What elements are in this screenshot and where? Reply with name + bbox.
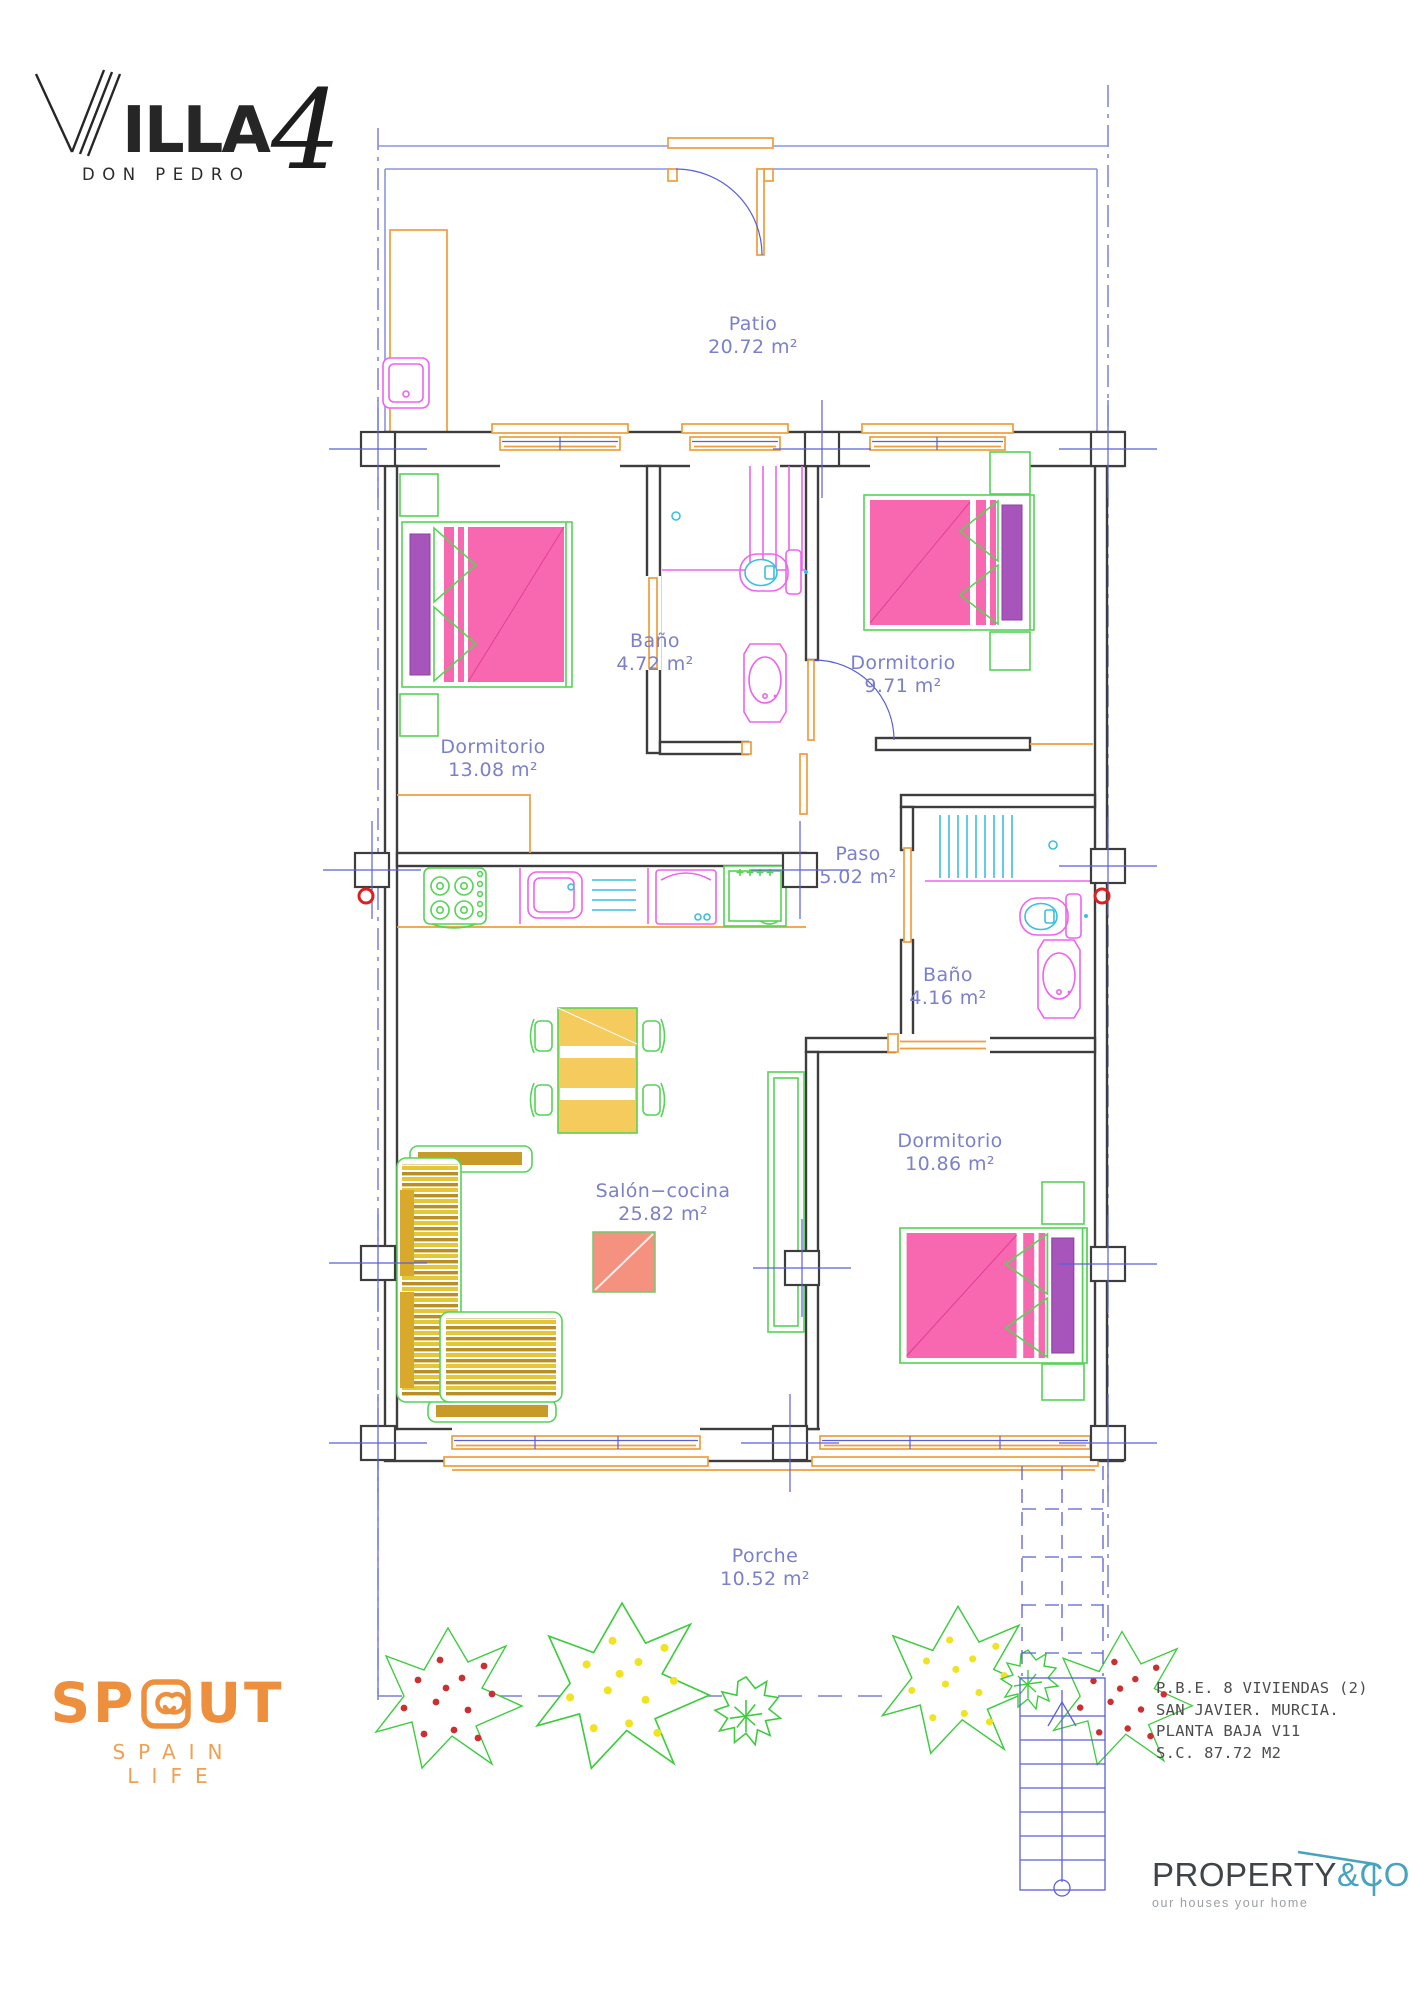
window-top-dormitorio-1	[492, 424, 628, 468]
room-name: Dormitorio	[440, 736, 545, 759]
room-name: Paso	[835, 843, 880, 866]
project-info-line: PLANTA BAJA V11	[1156, 1721, 1368, 1743]
patio-sink-icon	[383, 358, 429, 408]
room-name: Baño	[630, 630, 680, 653]
room-area: 9.71 m²	[864, 675, 941, 698]
room-name: Porche	[732, 1545, 798, 1568]
room-area: 13.08 m²	[448, 759, 538, 782]
door-dormitorio-3	[888, 1034, 990, 1054]
room-label-bano-2: Baño 4.16 m²	[868, 964, 1028, 1009]
room-area: 20.72 m²	[708, 336, 798, 359]
spout-tagline: SPAIN LIFE	[45, 1740, 290, 1788]
spout-logo-left: SP	[50, 1676, 136, 1731]
spout-o-icon	[140, 1678, 192, 1730]
bed-dormitorio-3	[900, 1228, 1087, 1363]
spout-logo-row: SP UT	[45, 1676, 290, 1731]
wardrobe	[768, 1072, 804, 1332]
roof-icon	[1292, 1834, 1388, 1898]
room-area: 25.82 m²	[618, 1203, 708, 1226]
dishwasher-icon	[656, 870, 716, 924]
project-info: P.B.E. 8 VIVIENDAS (2) SAN JAVIER. MURCI…	[1156, 1678, 1368, 1764]
villa-logo-graphic: ILLA 4 DON PEDRO	[28, 52, 358, 197]
stove-icon	[424, 868, 486, 928]
window-bottom-dormitorio-3	[812, 1427, 1098, 1466]
room-area: 10.86 m²	[905, 1153, 995, 1176]
property-co-logo: PROPERTY&CO our houses your home	[1152, 1858, 1412, 1910]
sink-icon-bano-1	[744, 644, 786, 722]
spout-logo: SPOUT SP UT SPAIN LIFE	[45, 1676, 290, 1788]
room-name: Salón−cocina	[596, 1180, 731, 1203]
villa-logo-subtitle: DON PEDRO	[82, 165, 250, 184]
window-bottom-salon	[444, 1427, 708, 1466]
villa-logo-number: 4	[270, 66, 341, 194]
room-label-dormitorio-3: Dormitorio 10.86 m²	[860, 1130, 1040, 1175]
room-label-dormitorio-1: Dormitorio 13.08 m²	[403, 736, 583, 781]
room-label-dormitorio-2: Dormitorio 9.71 m²	[813, 652, 993, 697]
room-area: 10.52 m²	[720, 1568, 810, 1591]
villa-logo: V ILLA 4 DON PEDRO	[28, 52, 358, 197]
room-label-bano-1: Baño 4.72 m²	[575, 630, 735, 675]
fridge-icon	[724, 866, 786, 926]
villa-v-icon	[36, 70, 120, 156]
room-name: Dormitorio	[850, 652, 955, 675]
project-info-line: P.B.E. 8 VIVIENDAS (2)	[1156, 1678, 1368, 1700]
property-co-tagline: our houses your home	[1152, 1896, 1412, 1910]
kitchen-sink-icon	[528, 872, 582, 918]
property-co-wordmark: PROPERTY&CO	[1152, 1858, 1412, 1891]
side-table	[593, 1232, 655, 1292]
room-area: 4.72 m²	[616, 653, 693, 676]
room-label-salon-cocina: Salón−cocina 25.82 m²	[553, 1180, 773, 1225]
room-label-porche: Porche 10.52 m²	[675, 1545, 855, 1590]
room-area: 5.02 m²	[819, 866, 896, 889]
room-label-paso: Paso 5.02 m²	[788, 843, 928, 888]
room-name: Baño	[923, 964, 973, 987]
project-info-line: SAN JAVIER. MURCIA.	[1156, 1700, 1368, 1722]
room-area: 4.16 m²	[909, 987, 986, 1010]
window-top-bano-1	[682, 424, 788, 468]
room-label-patio: Patio 20.72 m²	[673, 313, 833, 358]
bed-dormitorio-1	[402, 522, 572, 687]
room-name: Patio	[729, 313, 778, 336]
dining-table	[558, 1008, 637, 1133]
bed-dormitorio-2	[864, 495, 1034, 630]
floor-plan-page: Patio 20.72 m² Dormitorio 13.08 m² Baño …	[0, 0, 1414, 2000]
project-info-line: S.C. 87.72 M2	[1156, 1743, 1368, 1765]
spout-logo-right: UT	[196, 1676, 284, 1731]
villa-logo-rest: ILLA	[122, 94, 271, 168]
room-name: Dormitorio	[897, 1130, 1002, 1153]
sink-icon-bano-2	[1038, 940, 1080, 1018]
